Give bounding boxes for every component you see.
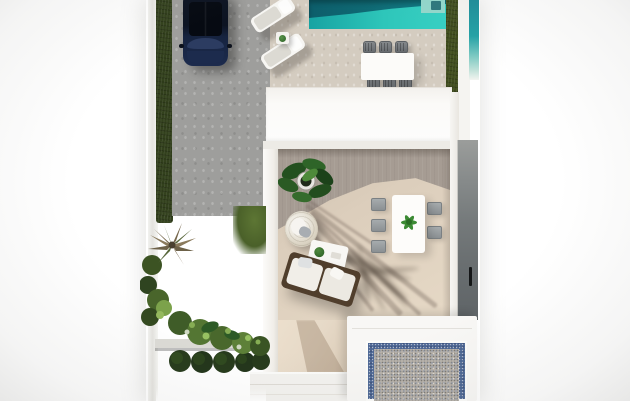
- outdoor-dining-table: [361, 53, 414, 80]
- gravel-solarium: [347, 316, 477, 401]
- outdoor-dining-chair: [395, 41, 408, 53]
- house-roof: [266, 88, 452, 141]
- courtyard-terrace: [278, 149, 450, 320]
- lounger-side-table: [276, 32, 289, 44]
- courtyard-dining-chair: [427, 202, 442, 215]
- outdoor-dining-chair: [363, 41, 376, 53]
- pool-ladder: [431, 1, 441, 10]
- plant-core: [406, 219, 412, 225]
- neighbor-pool: [469, 0, 479, 80]
- solarium-step-seam: [352, 328, 472, 329]
- door-handle: [469, 267, 472, 286]
- parked-car: [183, 0, 228, 66]
- potted-plant: [278, 155, 338, 211]
- car-roof: [189, 2, 222, 36]
- solarium-gravel: [374, 349, 459, 401]
- car-windshield: [187, 38, 224, 49]
- car-hood: [187, 51, 224, 63]
- entry-wall: [457, 140, 478, 320]
- lawn-bottom-fade: [156, 388, 266, 401]
- garden-plants: [140, 205, 290, 401]
- garden-bushes: [140, 255, 172, 326]
- outdoor-dining-chair: [379, 41, 392, 53]
- swimming-pool: [309, 0, 446, 29]
- small-plant: [279, 35, 286, 42]
- left-hedge: [156, 0, 173, 223]
- table-tray: [330, 252, 341, 260]
- table-centerpiece-plant: [399, 213, 419, 231]
- courtyard-dining-chair: [371, 240, 386, 253]
- sofa-pillow: [298, 257, 313, 269]
- car-mirror-left: [179, 44, 184, 48]
- courtyard-dining-chair: [371, 219, 386, 232]
- courtyard-dining-chair: [371, 198, 386, 211]
- car-mirror-right: [227, 44, 232, 48]
- table-plant: [313, 246, 325, 258]
- aerial-villa-render: [0, 0, 630, 401]
- courtyard-dining-chair: [427, 226, 442, 239]
